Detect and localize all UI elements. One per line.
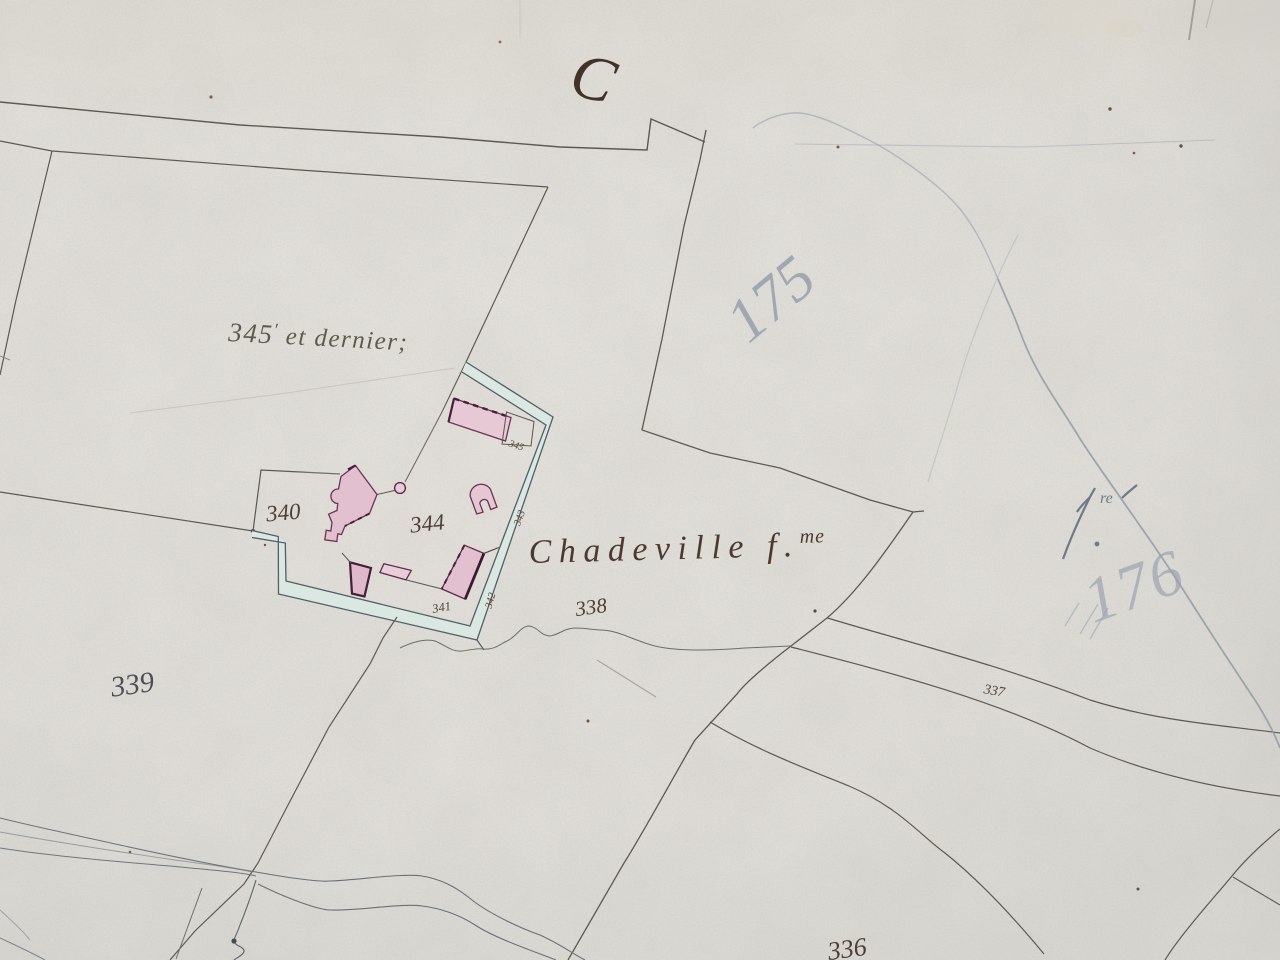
svg-text:re: re (1100, 490, 1113, 507)
svg-text:344: 344 (408, 509, 446, 538)
svg-text:336: 336 (825, 932, 869, 960)
svg-text:338: 338 (573, 593, 609, 621)
svg-text:Chadeville f.me: Chadeville f.me (528, 525, 825, 571)
svg-text:340: 340 (264, 498, 302, 526)
svg-text:339: 339 (108, 666, 157, 704)
